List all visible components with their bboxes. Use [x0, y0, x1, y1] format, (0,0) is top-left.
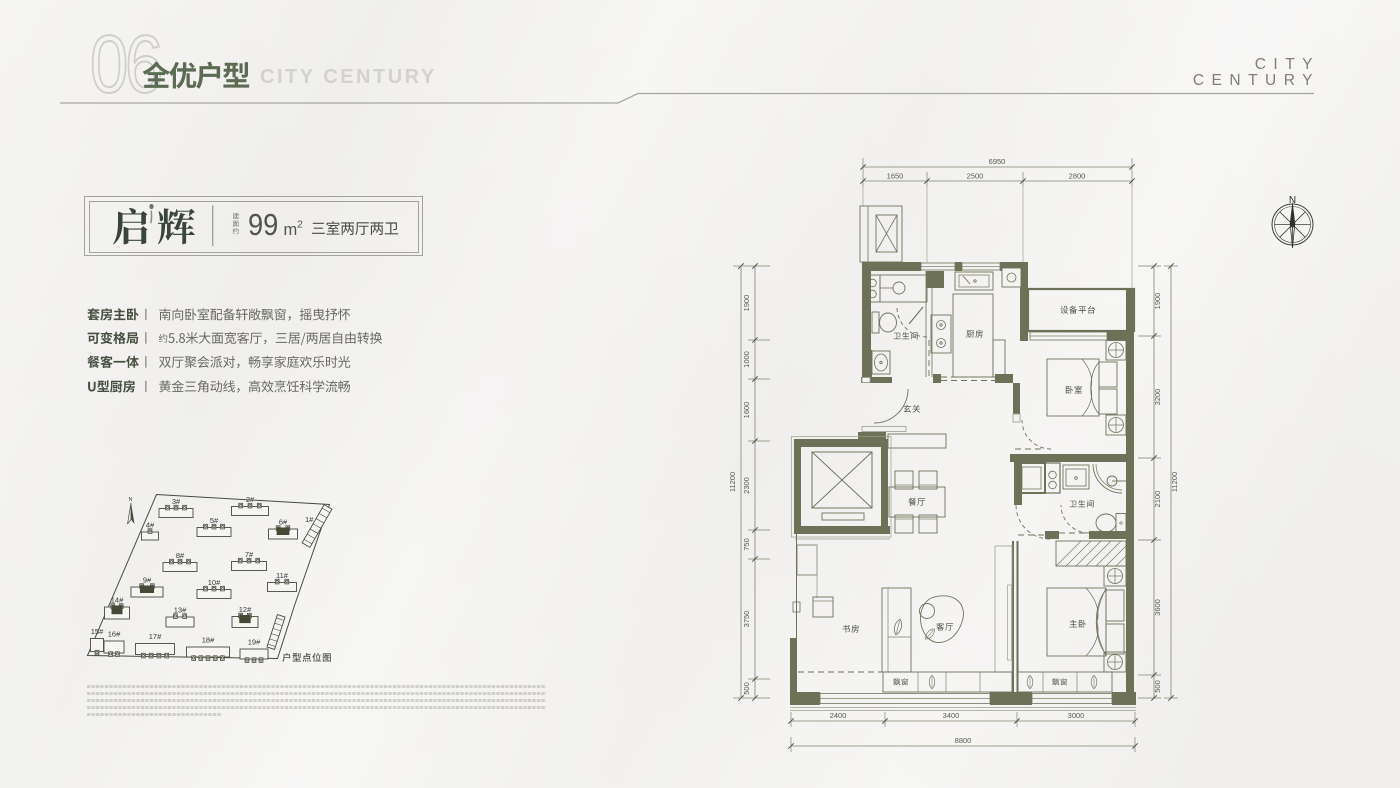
svg-text:N: N [1289, 195, 1296, 206]
svg-text:2100: 2100 [1153, 491, 1162, 508]
svg-text:3000: 3000 [1068, 711, 1085, 720]
svg-text:3750: 3750 [742, 611, 751, 628]
svg-text:2300: 2300 [742, 477, 751, 494]
svg-text:1000: 1000 [742, 351, 751, 368]
svg-text:2800: 2800 [1069, 172, 1086, 181]
svg-text:3600: 3600 [1153, 599, 1162, 616]
svg-text:11200: 11200 [728, 472, 737, 492]
svg-text:500: 500 [742, 682, 751, 695]
svg-text:1600: 1600 [742, 402, 751, 419]
svg-text:500: 500 [1153, 680, 1162, 693]
svg-text:11200: 11200 [1170, 472, 1179, 492]
svg-text:1650: 1650 [887, 172, 904, 181]
svg-text:2500: 2500 [967, 172, 984, 181]
svg-text:2400: 2400 [830, 711, 847, 720]
svg-text:8800: 8800 [955, 736, 972, 745]
svg-text:3400: 3400 [943, 711, 960, 720]
svg-text:6950: 6950 [989, 157, 1006, 166]
svg-text:1900: 1900 [742, 295, 751, 312]
svg-text:1900: 1900 [1153, 293, 1162, 310]
svg-text:3200: 3200 [1153, 389, 1162, 406]
svg-text:750: 750 [742, 538, 751, 551]
